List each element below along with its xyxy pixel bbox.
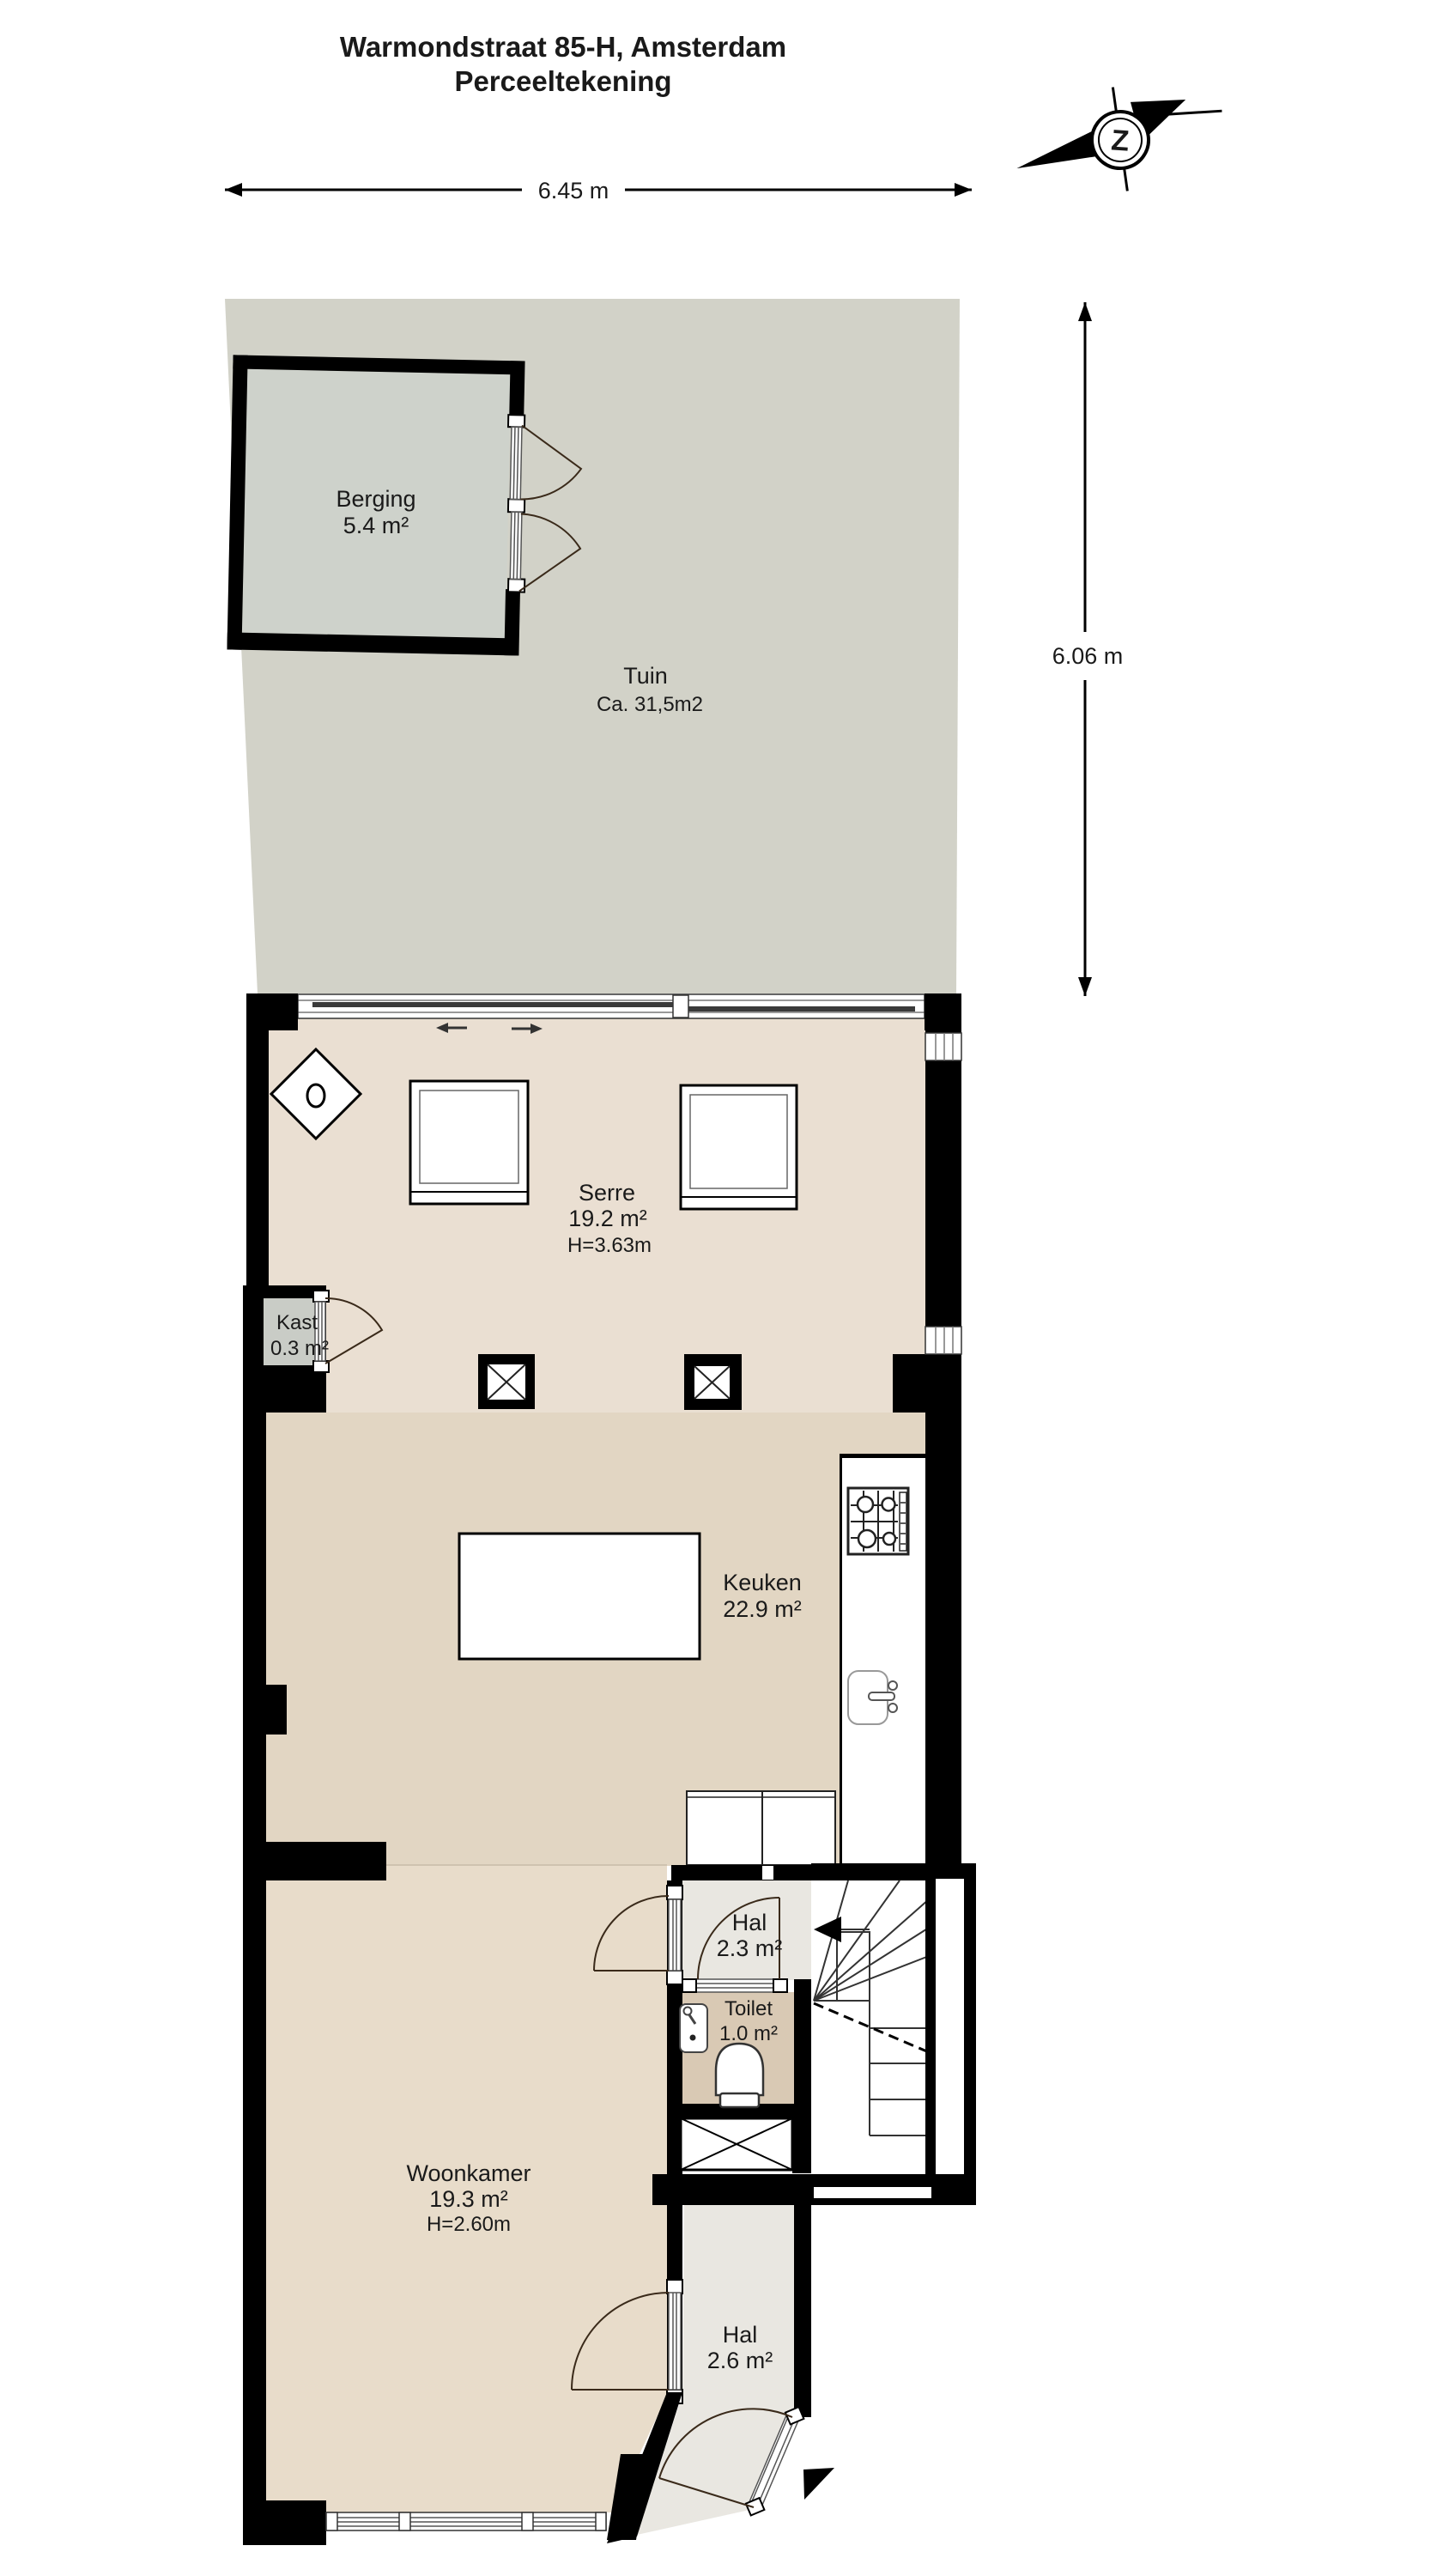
serre-height: H=3.63m [567,1234,652,1257]
column-right [684,1354,742,1410]
dimension-depth-label: 6.06 m [1052,643,1124,669]
compass-icon: Z [1008,73,1232,206]
tuin-area: Ca. 31,5m2 [597,693,703,716]
dimension-depth: 6.06 m [1052,302,1124,996]
hal-boven-area: 2.3 m² [717,1935,783,1961]
hal-entree-area: 2.6 m² [707,2348,773,2373]
kitchen-island [459,1534,700,1659]
stairwell-channel [936,1879,964,2174]
skylight-left [410,1081,528,1204]
dimension-width-label: 6.45 m [538,178,609,204]
hal-entree-label: Hal [723,2322,758,2348]
stove-icon [848,1488,908,1554]
compass-letter: Z [1110,124,1130,157]
kast-label: Kast [276,1311,318,1334]
column-left [478,1354,535,1409]
page-subtitle: Perceeltekening [454,65,671,97]
keuken-label: Keuken [723,1570,802,1595]
tuin-label: Tuin [623,663,668,689]
dimension-width: 6.45 m [225,178,972,204]
floorplan-drawing: Warmondstraat 85-H, Amsterdam Perceeltek… [0,0,1449,2576]
right-wall-window-2 [925,1327,961,1354]
right-wall-window-1 [925,1033,961,1060]
appliance-right [762,1791,835,1865]
serre-label: Serre [579,1180,635,1206]
toilet-bowl-icon [716,2044,763,2107]
woonkamer-height: H=2.60m [427,2213,511,2236]
floorplan-page: Warmondstraat 85-H, Amsterdam Perceeltek… [0,0,1449,2576]
woonkamer-area: 19.3 m² [429,2186,508,2212]
skylight-right [681,1085,797,1209]
serre-area: 19.2 m² [568,1206,647,1231]
page-title: Warmondstraat 85-H, Amsterdam [340,31,786,63]
keuken-area: 22.9 m² [723,1596,802,1622]
kast-area: 0.3 m² [270,1337,329,1360]
hal-boven-label: Hal [732,1910,767,1935]
toilet-area: 1.0 m² [719,2022,778,2045]
toilet-sink-icon [680,2004,707,2052]
berging-area: 5.4 m² [343,513,409,538]
facade-window-band [326,2512,606,2530]
entrance-arrow-icon [803,2468,834,2500]
woonkamer-label: Woonkamer [406,2160,530,2186]
appliance-left [687,1791,762,1865]
toilet-label: Toilet [724,1997,773,2020]
berging-label: Berging [336,486,415,512]
